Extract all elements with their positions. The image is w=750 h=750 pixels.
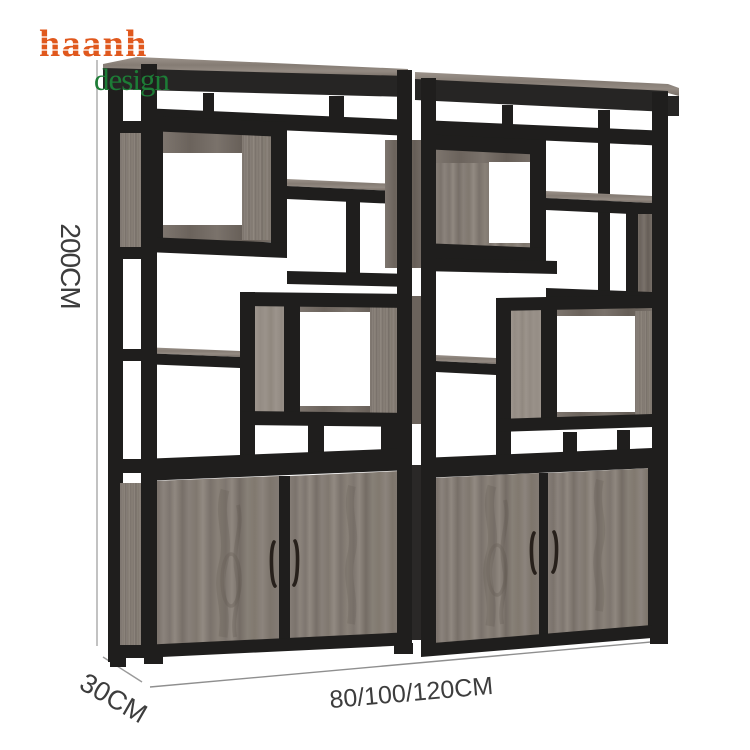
svg-text:200CM: 200CM <box>55 223 86 308</box>
svg-text:design: design <box>94 62 170 97</box>
